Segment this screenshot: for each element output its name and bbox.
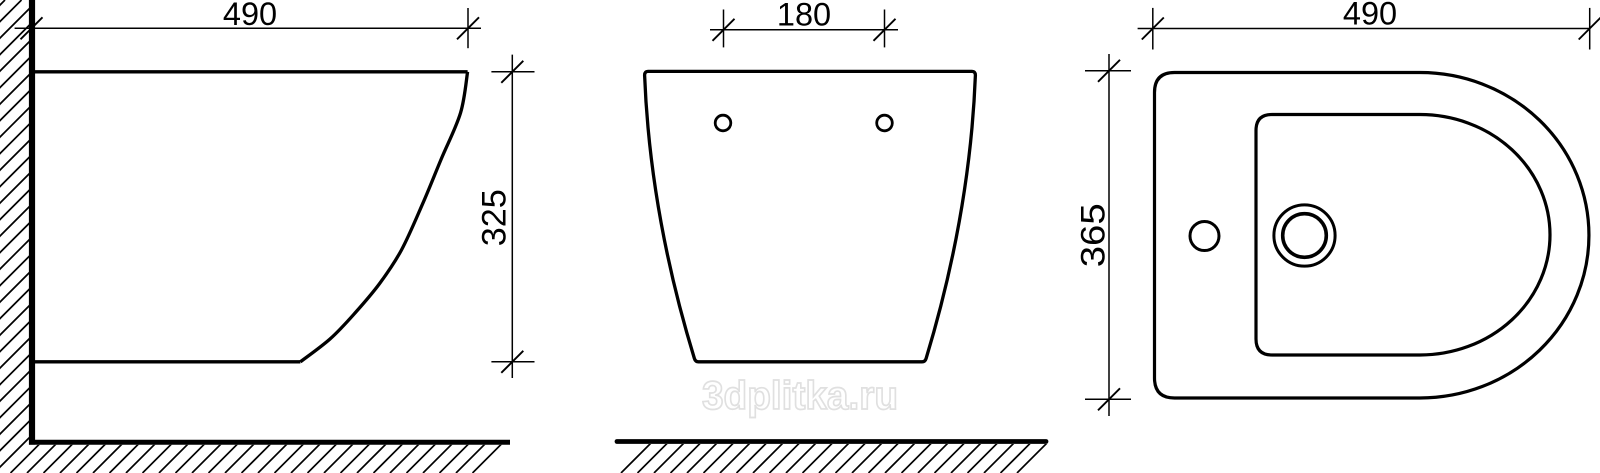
svg-text:490: 490 [223, 0, 277, 32]
svg-text:490: 490 [1343, 0, 1397, 31]
svg-text:3dplitka.ru: 3dplitka.ru [702, 374, 898, 418]
svg-text:325: 325 [476, 189, 514, 246]
svg-text:365: 365 [1075, 203, 1113, 267]
svg-text:180: 180 [777, 0, 831, 32]
